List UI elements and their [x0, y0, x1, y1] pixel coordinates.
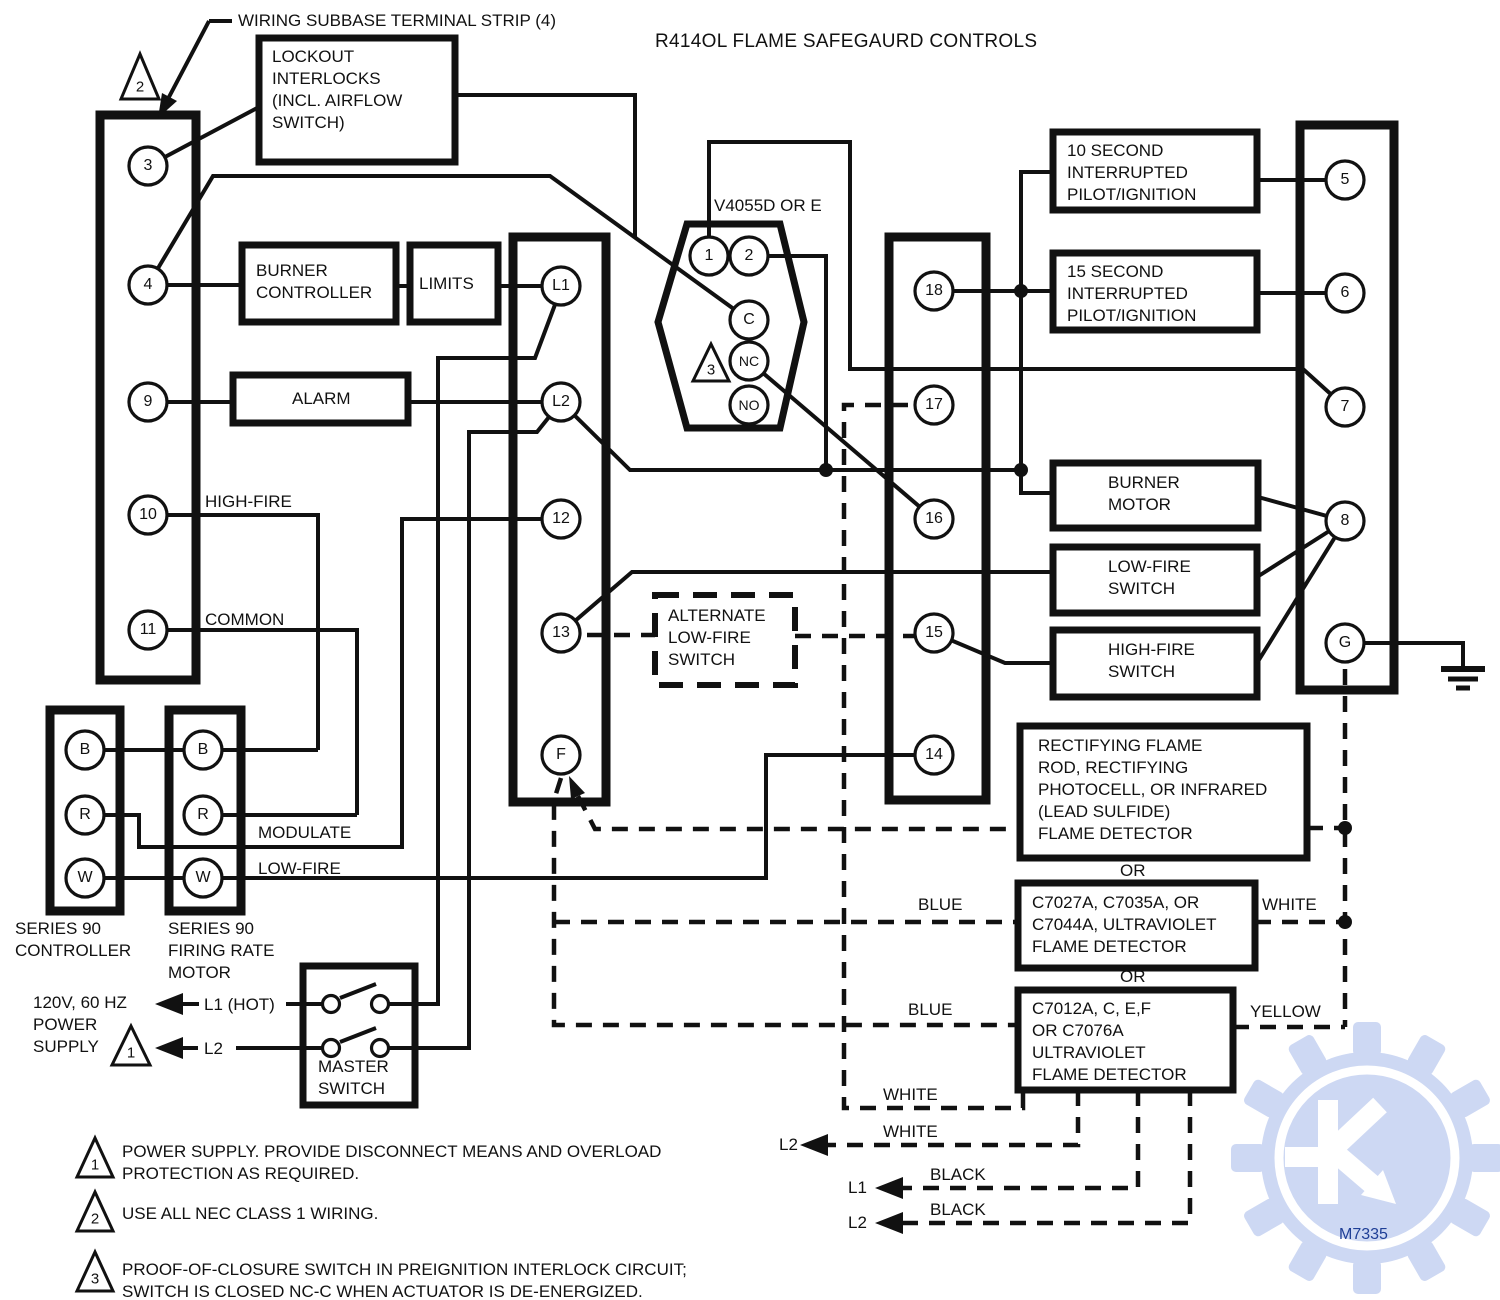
- pilot10-label: 10 SECOND INTERRUPTED PILOT/IGNITION: [1067, 140, 1196, 206]
- terminal-label: W: [195, 870, 210, 886]
- terminal-label: 4: [144, 277, 153, 293]
- l1-hot-label: L1 (HOT): [204, 994, 275, 1016]
- terminal-label: 15: [925, 625, 943, 641]
- terminal-label: R: [197, 807, 209, 823]
- wiring-diagram: WIRING SUBBASE TERMINAL STRIP (4) R414OL…: [0, 0, 1500, 1300]
- terminal-label: NO: [739, 397, 760, 413]
- limits-label: LIMITS: [419, 273, 474, 295]
- callout-number: 1: [127, 1046, 135, 1061]
- terminal-label: 5: [1341, 172, 1350, 188]
- l2-white-arrow-icon: [800, 1134, 828, 1156]
- terminal-label: 12: [552, 511, 570, 527]
- series90-motor-label: SERIES 90 FIRING RATE MOTOR: [168, 918, 274, 984]
- series90-controller-label: SERIES 90 CONTROLLER: [15, 918, 131, 962]
- terminal-label: 10: [139, 507, 157, 523]
- pilot15-label: 15 SECOND INTERRUPTED PILOT/IGNITION: [1067, 261, 1196, 327]
- blue-wire-label: BLUE: [908, 999, 952, 1021]
- callout-number: 2: [91, 1212, 99, 1227]
- terminal-label: L1: [552, 278, 570, 294]
- terminal-label: W: [77, 870, 92, 886]
- terminal-label: NC: [739, 353, 759, 369]
- white-wire-label: WHITE: [883, 1084, 938, 1106]
- burner-motor-label: BURNER MOTOR: [1108, 472, 1180, 516]
- c7012-label: C7012A, C, E,F OR C7076A ULTRAVIOLET FLA…: [1032, 998, 1187, 1086]
- terminal-label: G: [1339, 635, 1351, 651]
- yellow-wire-label: YELLOW: [1250, 1001, 1321, 1023]
- burner-controller-label: BURNER CONTROLLER: [256, 260, 372, 304]
- callout-number: 2: [136, 80, 144, 95]
- terminal-label: B: [80, 742, 91, 758]
- l2-power-arrow-icon: [155, 1037, 183, 1059]
- alarm-label: ALARM: [292, 388, 351, 410]
- terminal-label: 17: [925, 397, 943, 413]
- page-title: R414OL FLAME SAFEGAURD CONTROLS: [655, 31, 1037, 53]
- high-fire-switch-label: HIGH-FIRE SWITCH: [1108, 639, 1195, 683]
- ground-icon: [1441, 669, 1485, 688]
- terminal-label: F: [556, 747, 566, 763]
- or-label: OR: [1120, 966, 1146, 988]
- note-text: USE ALL NEC CLASS 1 WIRING.: [122, 1203, 378, 1225]
- l2-terminal-label: L2: [848, 1212, 867, 1234]
- valve-name-label: V4055D OR E: [714, 195, 822, 217]
- l1-power-arrow-icon: [155, 993, 183, 1015]
- note-text: PROOF-OF-CLOSURE SWITCH IN PREIGNITION I…: [122, 1259, 687, 1300]
- l2-power-label: L2: [204, 1038, 223, 1060]
- drawing-number: M7335: [1339, 1226, 1388, 1244]
- terminal-label: 18: [925, 283, 943, 299]
- terminal-label: 8: [1341, 513, 1350, 529]
- terminal-label: L2: [552, 394, 570, 410]
- rectifying-label: RECTIFYING FLAME ROD, RECTIFYING PHOTOCE…: [1038, 735, 1267, 845]
- low-fire-switch-label: LOW-FIRE SWITCH: [1108, 556, 1191, 600]
- high-fire-wire-label: HIGH-FIRE: [205, 491, 292, 513]
- terminal-label: 3: [144, 158, 153, 174]
- master-switch-label: MASTER SWITCH: [318, 1056, 389, 1100]
- l2-black-arrow-icon: [875, 1212, 903, 1234]
- l1-terminal-label: L1: [848, 1177, 867, 1199]
- l2-terminal-label: L2: [779, 1134, 798, 1156]
- terminal-label: 6: [1341, 285, 1350, 301]
- terminal-label: 11: [140, 622, 157, 638]
- white-wire-label: WHITE: [883, 1121, 938, 1143]
- terminal-label: 14: [925, 747, 943, 763]
- terminal-label: R: [79, 807, 91, 823]
- terminal-label: 7: [1341, 399, 1350, 415]
- gear-watermark-icon: [1231, 1022, 1500, 1294]
- modulate-wire-label: MODULATE: [258, 822, 351, 844]
- common-wire-label: COMMON: [205, 609, 284, 631]
- terminal-label: 9: [144, 394, 153, 410]
- c7027-label: C7027A, C7035A, OR C7044A, ULTRAVIOLET F…: [1032, 892, 1217, 958]
- terminal-label: 16: [925, 511, 943, 527]
- lockout-label: LOCKOUT INTERLOCKS (INCL. AIRFLOW SWITCH…: [272, 46, 402, 134]
- terminal-label: 13: [552, 625, 570, 641]
- callout-number: 3: [707, 363, 715, 378]
- l1-black-arrow-icon: [875, 1177, 903, 1199]
- black-wire-label: BLACK: [930, 1199, 986, 1221]
- callout-number: 3: [91, 1272, 99, 1287]
- white-wire-label: WHITE: [1262, 894, 1317, 916]
- low-fire-wire-label: LOW-FIRE: [258, 858, 341, 880]
- or-label: OR: [1120, 860, 1146, 882]
- alternate-label: ALTERNATE LOW-FIRE SWITCH: [668, 605, 766, 671]
- callout-number: 1: [91, 1158, 99, 1173]
- terminal-label: 2: [745, 248, 754, 264]
- terminal-label: C: [743, 312, 755, 328]
- black-wire-label: BLACK: [930, 1164, 986, 1186]
- blue-wire-label: BLUE: [918, 894, 962, 916]
- power-supply-label: 120V, 60 HZ POWER SUPPLY: [33, 992, 127, 1058]
- subbase-callout-label: WIRING SUBBASE TERMINAL STRIP (4): [238, 10, 556, 32]
- terminal-label: B: [198, 742, 209, 758]
- note-text: POWER SUPPLY. PROVIDE DISCONNECT MEANS A…: [122, 1141, 661, 1185]
- terminal-label: 1: [705, 248, 714, 264]
